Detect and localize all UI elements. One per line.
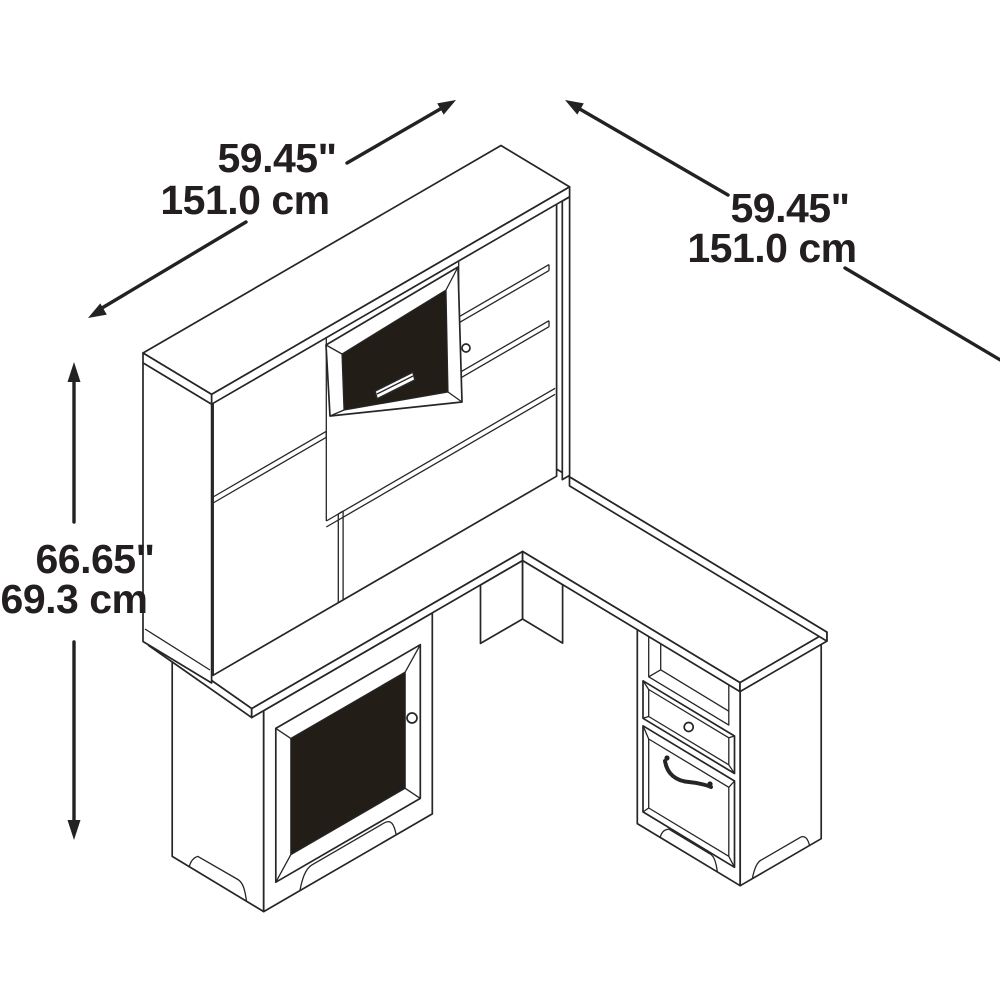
height-cm-label: 69.3 cm: [1, 576, 148, 622]
box-drawer-knob: [684, 723, 693, 732]
arrowhead-up-right-icon: [437, 100, 456, 115]
dimension-diagram: 59.45" 151.0 cm 59.45" 151.0 cm 66.65" 6…: [0, 0, 1000, 1000]
hutch-width-inches-label: 59.45": [217, 135, 336, 181]
left-door-knob: [407, 713, 417, 723]
hutch-door-knob: [462, 344, 470, 352]
hutch-width-cm-label: 151.0 cm: [160, 177, 329, 223]
hutch-right-panel: [562, 197, 569, 480]
return-length-cm-label: 151.0 cm: [687, 225, 856, 271]
arrowhead-up-left-icon: [565, 100, 584, 115]
arrowhead-down-icon: [68, 820, 81, 840]
desk-line-drawing: 59.45" 151.0 cm 59.45" 151.0 cm 66.65" 6…: [0, 0, 1000, 1000]
